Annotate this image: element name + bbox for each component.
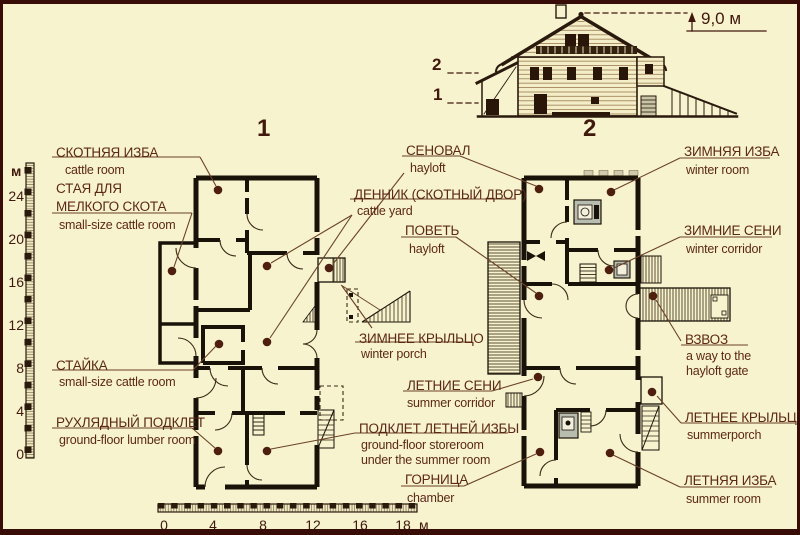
label-summer-corridor-en: summer corridor bbox=[407, 397, 495, 410]
plan2-title: 2 bbox=[583, 117, 596, 141]
izba-plan-diagram: 1 2 2 1 9,0 м м 24 20 16 12 8 4 0 0 4 8 … bbox=[0, 0, 800, 535]
hscale-tick-12: 12 bbox=[300, 518, 326, 532]
hscale-tick-16: 16 bbox=[347, 518, 373, 532]
label-small-cattle-ru-2: МЕЛКОГО СКОТА bbox=[56, 200, 166, 214]
label-povet-ru: ПОВЕТЬ bbox=[405, 224, 459, 238]
hscale-tick-8: 8 bbox=[250, 518, 276, 532]
plan2-stairs-winter-corridor bbox=[580, 264, 596, 282]
label-povet-en: hayloft bbox=[409, 243, 444, 256]
label-stayka-ru: СТАЙКА bbox=[56, 359, 107, 373]
label-summer-porch-ru: ЛЕТНЕЕ КРЫЛЬЦО bbox=[685, 411, 800, 425]
label-winter-corridor-ru: ЗИМНИЕ СЕНИ bbox=[684, 224, 781, 238]
hscale-unit: м bbox=[419, 518, 429, 532]
vscale-tick-20: 20 bbox=[4, 232, 24, 246]
horizontal-scale-bar bbox=[158, 503, 417, 512]
plan2-stove-winter-room bbox=[574, 200, 601, 224]
height-arrow-icon bbox=[688, 12, 696, 22]
plan1-ladder bbox=[253, 414, 264, 435]
label-gornitsa-ru: ГОРНИЦА bbox=[405, 473, 468, 487]
vscale-tick-8: 8 bbox=[4, 361, 24, 375]
hscale-tick-4: 4 bbox=[200, 518, 226, 532]
gable-window bbox=[565, 34, 576, 46]
vertical-scale-bar bbox=[25, 163, 35, 458]
label-stayka-en: small-size cattle room bbox=[59, 376, 175, 389]
elevation-height-label: 9,0 м bbox=[701, 10, 741, 27]
elevation-level-1: 1 bbox=[433, 86, 442, 103]
plan2-log-ends bbox=[584, 171, 638, 176]
plan2-bowtie-mark bbox=[527, 251, 545, 261]
label-lumber-room-ru: РУХЛЯДНЫЙ ПОДКЛЕТ bbox=[56, 416, 205, 430]
gallery-balcony bbox=[536, 46, 637, 54]
label-summer-corridor-ru: ЛЕТНИЕ СЕНИ bbox=[407, 379, 501, 393]
plan1-title: 1 bbox=[257, 117, 270, 141]
plan1-annex bbox=[160, 243, 196, 363]
elevation-level-2: 2 bbox=[432, 56, 441, 73]
label-winter-porch-ru: ЗИМНЕЕ КРЫЛЬЦО bbox=[359, 332, 484, 346]
plan2-left-stairs bbox=[506, 393, 522, 407]
label-lumber-room-en: ground-floor lumber room bbox=[59, 434, 195, 447]
label-winter-room-ru: ЗИМНЯЯ ИЗБА bbox=[684, 145, 779, 159]
label-winter-room-en: winter room bbox=[686, 164, 749, 177]
label-gornitsa-en: chamber bbox=[407, 492, 454, 505]
label-vzvoz-en-2: hayloft gate bbox=[686, 365, 748, 378]
hscale-tick-0: 0 bbox=[151, 518, 177, 532]
leanto-door bbox=[486, 99, 499, 115]
label-senoval-en: hayloft bbox=[410, 162, 445, 175]
vscale-tick-4: 4 bbox=[4, 404, 24, 418]
label-small-cattle-ru-1: СТАЯ ДЛЯ bbox=[56, 182, 122, 196]
elevation-ramp bbox=[664, 86, 736, 114]
label-winter-corridor-en: winter corridor bbox=[686, 243, 762, 256]
label-dennik-ru: ДЕННИК (СКОТНЫЙ ДВОР) bbox=[354, 188, 526, 202]
vscale-unit: м bbox=[11, 164, 21, 178]
label-small-cattle-en: small-size cattle room bbox=[59, 219, 175, 232]
gable-window bbox=[578, 34, 589, 46]
plan2-stove-winter-corridor bbox=[614, 261, 630, 278]
label-podklet-en-1: ground-floor storeroom bbox=[361, 439, 484, 452]
label-cattle-room-ru: СКОТНЯЯ ИЗБА bbox=[56, 146, 158, 160]
label-vzvoz-en-1: a way to the bbox=[686, 350, 751, 363]
vscale-tick-0: 0 bbox=[4, 447, 24, 461]
label-podklet-ru: ПОДКЛЕТ ЛЕТНЕЙ ИЗБЫ bbox=[359, 422, 519, 436]
label-dennik-en: cattle yard bbox=[357, 205, 412, 218]
label-summer-room-ru: ЛЕТНЯЯ ИЗБА bbox=[684, 474, 776, 488]
label-vzvoz-ru: ВЗВОЗ bbox=[685, 333, 728, 347]
vscale-tick-12: 12 bbox=[4, 318, 24, 332]
vscale-tick-24: 24 bbox=[4, 189, 24, 203]
plan2-winter-corridor-stairs bbox=[641, 256, 661, 283]
plan2-door-arcs bbox=[524, 222, 638, 476]
plan2-left-ramp bbox=[488, 242, 520, 374]
label-senoval-ru: СЕНОВАЛ bbox=[406, 144, 470, 158]
vscale-tick-16: 16 bbox=[4, 275, 24, 289]
roof-finial bbox=[578, 12, 583, 17]
label-summer-room-en: summer room bbox=[686, 493, 761, 506]
label-winter-porch-en: winter porch bbox=[361, 348, 427, 361]
plan2-stove-summer-room bbox=[559, 412, 591, 438]
chimney bbox=[556, 5, 566, 18]
label-summer-porch-en: summerporch bbox=[687, 429, 761, 442]
label-podklet-en-2: under the summer room bbox=[361, 454, 490, 467]
hscale-tick-18: 18 bbox=[390, 518, 416, 532]
label-cattle-room-en: cattle room bbox=[65, 164, 125, 177]
